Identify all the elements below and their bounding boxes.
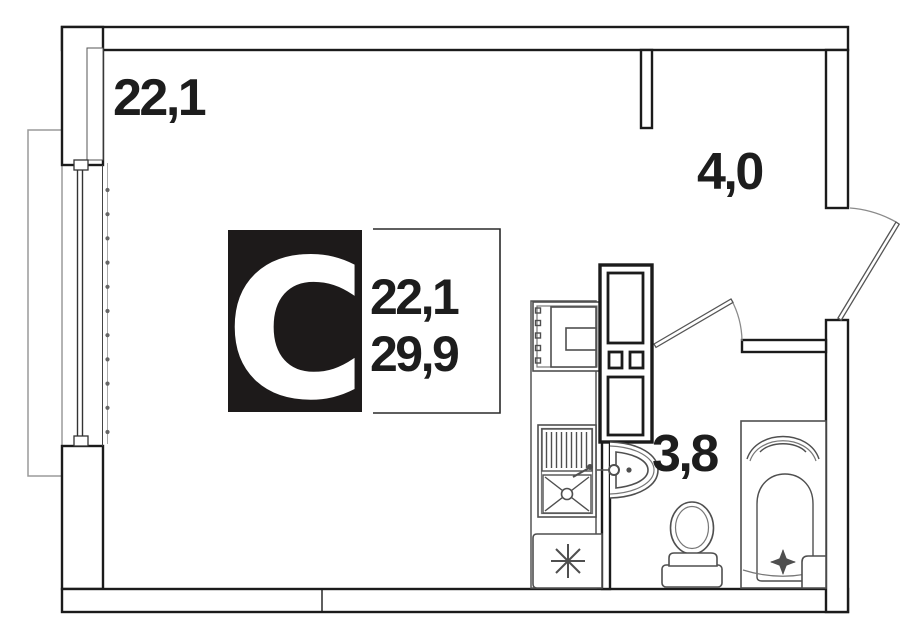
left-wall-lower-pier bbox=[62, 446, 103, 589]
toilet bbox=[662, 502, 722, 587]
window-sill-bottom bbox=[74, 436, 88, 446]
bathroom-door bbox=[654, 299, 742, 347]
window-sill-top bbox=[74, 160, 88, 170]
room-divider-stub bbox=[641, 50, 652, 128]
living-area-value: 22,1 bbox=[370, 269, 459, 325]
wardrobe bbox=[600, 265, 652, 442]
living-room-area-label: 22,1 bbox=[113, 69, 206, 127]
bathroom-north-wall bbox=[742, 340, 826, 352]
hallway-area-label: 4,0 bbox=[697, 143, 762, 201]
bathroom-west-wall bbox=[602, 442, 610, 589]
stove bbox=[533, 302, 601, 371]
kitchen-sink bbox=[538, 425, 596, 517]
floor-plan: С 22,1 29,9 22,1 4,0 3,8 bbox=[0, 0, 918, 640]
entrance-door bbox=[838, 208, 899, 320]
faucet-icon bbox=[587, 464, 593, 470]
bathroom-door-leaf bbox=[654, 299, 733, 347]
right-wall-lower bbox=[826, 320, 848, 612]
refrigerator bbox=[533, 534, 602, 588]
entrance-door-leaf bbox=[838, 222, 899, 320]
kitchen bbox=[531, 301, 602, 588]
bottom-wall bbox=[62, 589, 848, 612]
right-wall-upper bbox=[826, 50, 848, 208]
type-letter: С bbox=[226, 220, 365, 441]
top-wall bbox=[62, 27, 848, 50]
window bbox=[74, 160, 110, 446]
wall-layer-line bbox=[87, 48, 103, 160]
apartment-type-label: С 22,1 29,9 bbox=[226, 220, 500, 441]
total-area-value: 29,9 bbox=[370, 326, 458, 382]
bathtub bbox=[741, 421, 826, 588]
snowflake-icon bbox=[551, 544, 585, 578]
balcony bbox=[28, 130, 62, 476]
floor-plan-page: С 22,1 29,9 22,1 4,0 3,8 bbox=[0, 0, 918, 640]
bathroom-area-label: 3,8 bbox=[652, 425, 718, 483]
